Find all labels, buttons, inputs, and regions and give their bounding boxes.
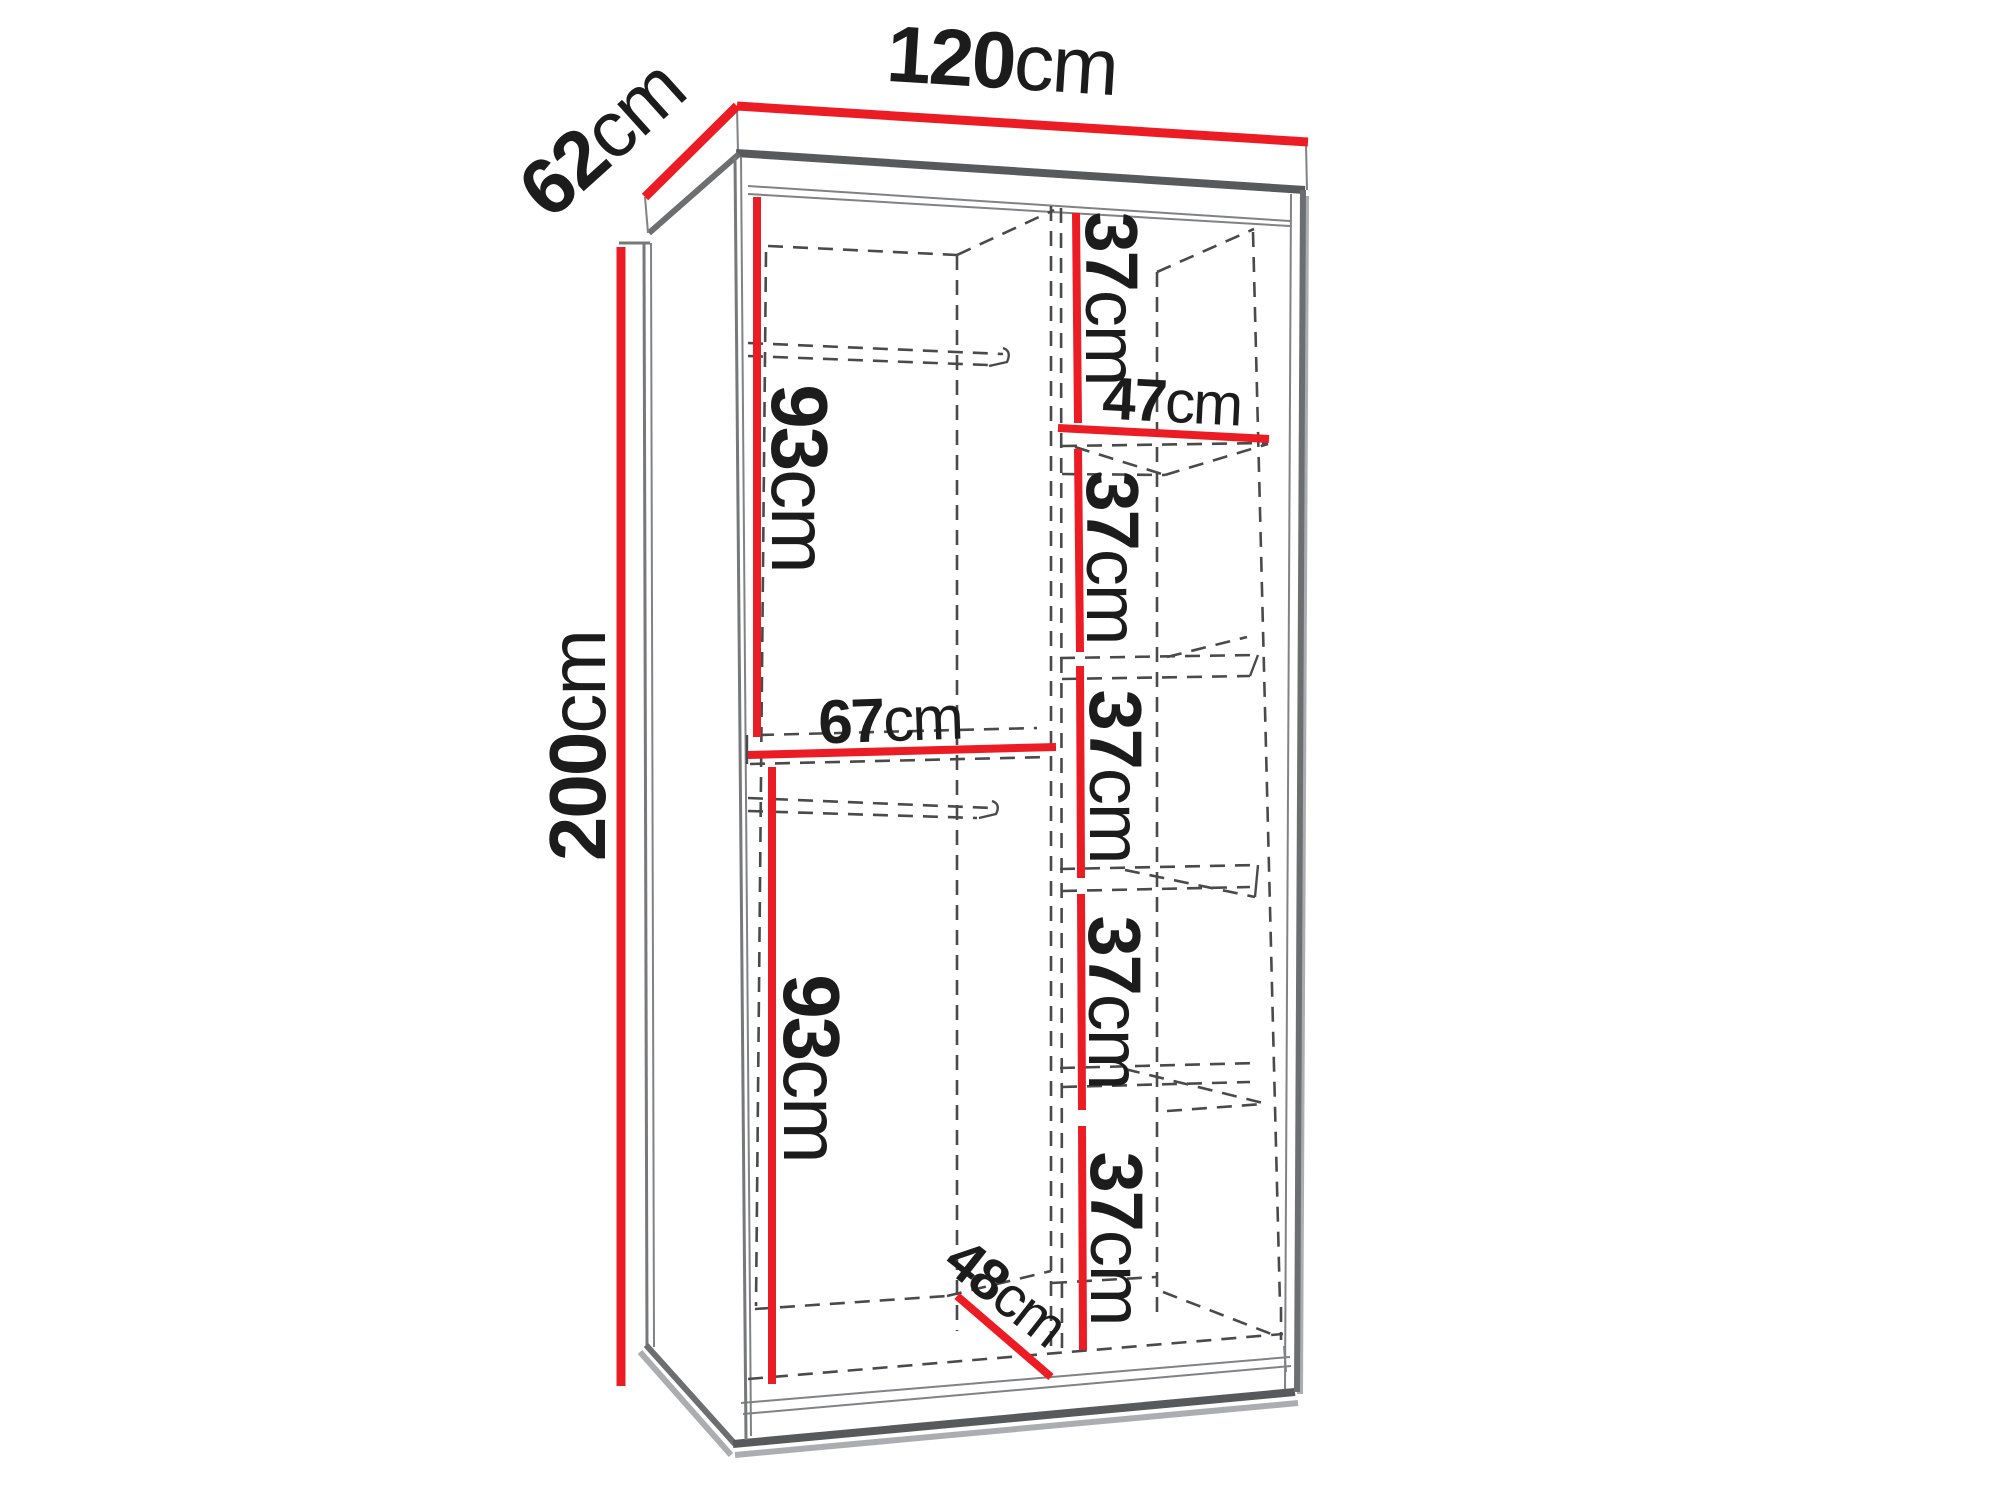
left-panel-outer-edge bbox=[644, 243, 647, 1347]
upper-rod-line-1 bbox=[748, 343, 1003, 354]
lower-rod-line-2 bbox=[748, 811, 977, 818]
shelf-3-right-end bbox=[1255, 865, 1258, 897]
shelf-column-back-top-diagonal bbox=[1157, 229, 1254, 272]
floor-back-edge-left bbox=[755, 1296, 947, 1309]
left-panel-outer-edge-2 bbox=[651, 243, 654, 1347]
shadow-bottom bbox=[735, 1403, 1298, 1455]
divider-front-edge-2 bbox=[1061, 208, 1062, 1353]
top-slab-left-front-edge bbox=[645, 197, 648, 233]
wardrobe-dimension-diagram: 120cm 62cm 200cm 93cm 67cm 93cm 48cm 47c… bbox=[0, 0, 2000, 1500]
top-slab-right-edge bbox=[1306, 143, 1307, 190]
floor-front-edge bbox=[748, 1334, 1283, 1379]
interior-ceiling-line-1 bbox=[748, 186, 1290, 221]
upper-rod-end-bracket bbox=[989, 348, 1009, 366]
shelf-2-right-end bbox=[1250, 655, 1258, 676]
lower-rod-line-1 bbox=[748, 798, 992, 808]
shelf-column-back-right-edge bbox=[1253, 232, 1280, 1305]
diagram-canvas: 120cm 62cm 200cm 93cm 67cm 93cm 48cm 47c… bbox=[0, 0, 2000, 1500]
shelf-3-front-top bbox=[1060, 865, 1258, 869]
label-left-section-width: 67cm bbox=[817, 683, 963, 757]
shelf-1-wedge-b bbox=[1165, 444, 1268, 475]
label-overall-depth: 62cm bbox=[502, 42, 701, 234]
lower-rod-end-bracket bbox=[979, 801, 998, 818]
top-slab-left-edge bbox=[737, 107, 738, 152]
shelf-4-wedge-b bbox=[1167, 1104, 1263, 1111]
shelf-3-front-bottom bbox=[1062, 887, 1250, 891]
bottom-front-edge bbox=[733, 1392, 1295, 1444]
top-slab-left-slant-edge bbox=[649, 154, 739, 233]
column-shelf-3 bbox=[1060, 865, 1258, 897]
label-lower-section-height: 93cm bbox=[768, 974, 857, 1162]
label-shelf-gap-4: 37cm bbox=[1074, 916, 1157, 1089]
shelf-3-wedge-a bbox=[1125, 870, 1255, 897]
label-overall-width: 120cm bbox=[884, 8, 1119, 111]
interior-left-wall-edge-2 bbox=[741, 157, 751, 1436]
shelf-2-front-top bbox=[1060, 655, 1258, 658]
back-top-edge-left-section bbox=[768, 246, 957, 255]
upper-rod-line-2 bbox=[748, 356, 988, 365]
interior-ceiling-line-2 bbox=[748, 194, 1290, 226]
divider-top-depth-diagonal bbox=[957, 210, 1054, 255]
label-upper-section-height: 93cm bbox=[756, 384, 845, 572]
right-panel-inner-edge bbox=[1285, 194, 1291, 1389]
label-shelf-gap-1: 37cm bbox=[1071, 212, 1154, 385]
shelf-1-front-top bbox=[1062, 443, 1268, 446]
label-overall-height: 200cm bbox=[533, 631, 622, 861]
shelf-2-wedge-a bbox=[1167, 637, 1247, 657]
label-shelf-gap-5: 37cm bbox=[1076, 1152, 1159, 1325]
interior-left-wall-edge-1 bbox=[735, 157, 746, 1440]
label-shelf-gap-2: 37cm bbox=[1072, 471, 1155, 644]
mid-shelf-front-edge bbox=[750, 757, 1050, 764]
dim-line-width-120 bbox=[737, 106, 1308, 142]
dimension-labels: 120cm 62cm 200cm 93cm 67cm 93cm 48cm 47c… bbox=[502, 8, 1244, 1358]
floor-depth-diagonal-column bbox=[1163, 1292, 1279, 1337]
label-shelf-gap-3: 37cm bbox=[1075, 690, 1158, 863]
top-slab-bottom-edge bbox=[736, 153, 1305, 190]
shadow-bottom-left bbox=[640, 1352, 731, 1455]
dimension-lines bbox=[621, 106, 1308, 1386]
left-panel-bottom-slant bbox=[646, 1345, 735, 1444]
